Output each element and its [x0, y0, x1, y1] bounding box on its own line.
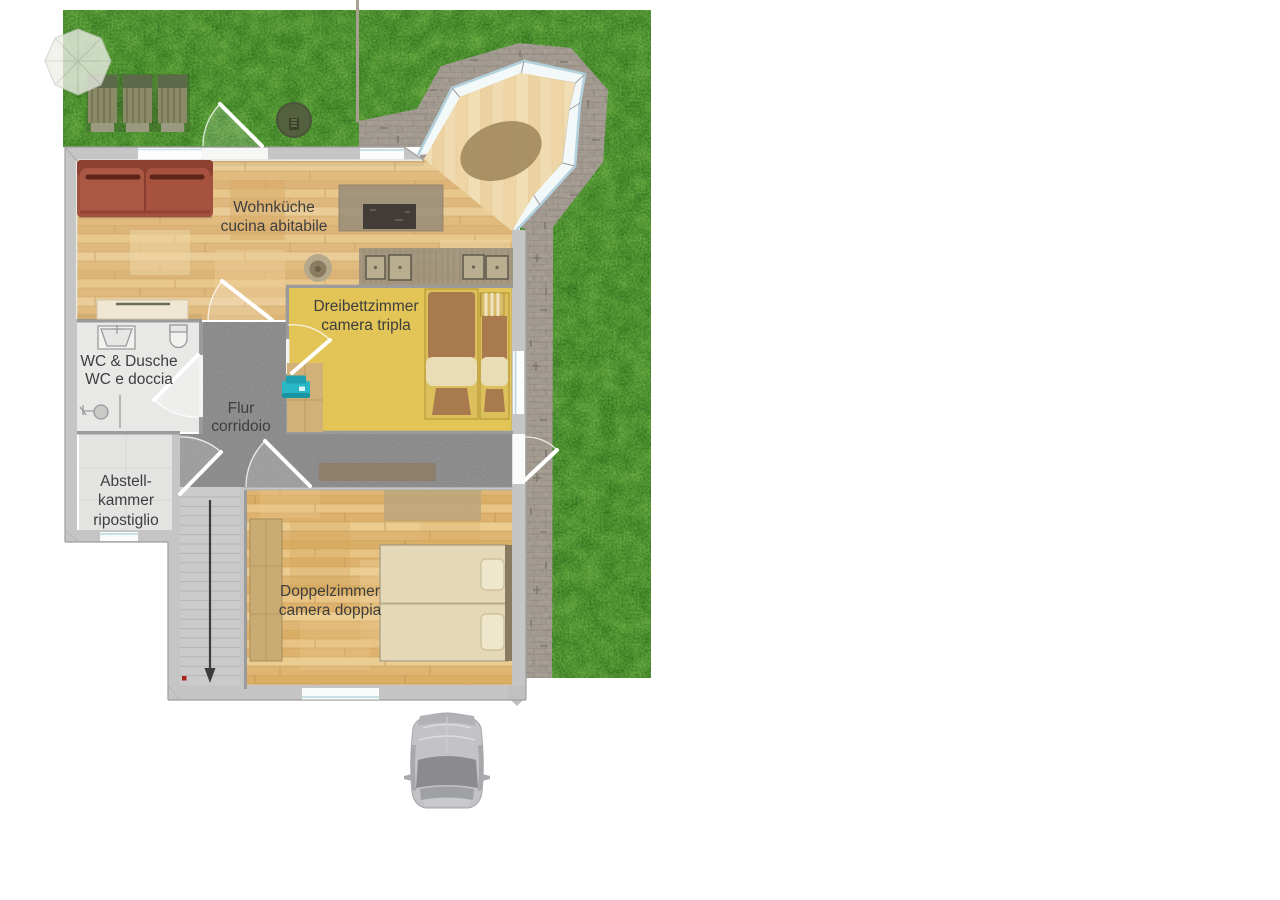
svg-text:camera doppia: camera doppia	[279, 602, 382, 619]
svg-text:Doppelzimmer: Doppelzimmer	[280, 583, 380, 600]
svg-text:Wohnküche: Wohnküche	[233, 199, 315, 216]
svg-text:Dreibettzimmer: Dreibettzimmer	[313, 298, 418, 315]
svg-text:ripostiglio: ripostiglio	[93, 512, 158, 529]
svg-text:corridoio: corridoio	[211, 418, 270, 435]
svg-text:Flur: Flur	[228, 400, 255, 417]
svg-text:WC e doccia: WC e doccia	[85, 371, 173, 388]
svg-text:Abstell-: Abstell-	[100, 473, 152, 490]
svg-text:cucina abitabile: cucina abitabile	[221, 218, 328, 235]
svg-text:kammer: kammer	[98, 492, 154, 509]
svg-text:camera tripla: camera tripla	[321, 317, 411, 334]
svg-text:WC & Dusche: WC & Dusche	[80, 353, 177, 370]
